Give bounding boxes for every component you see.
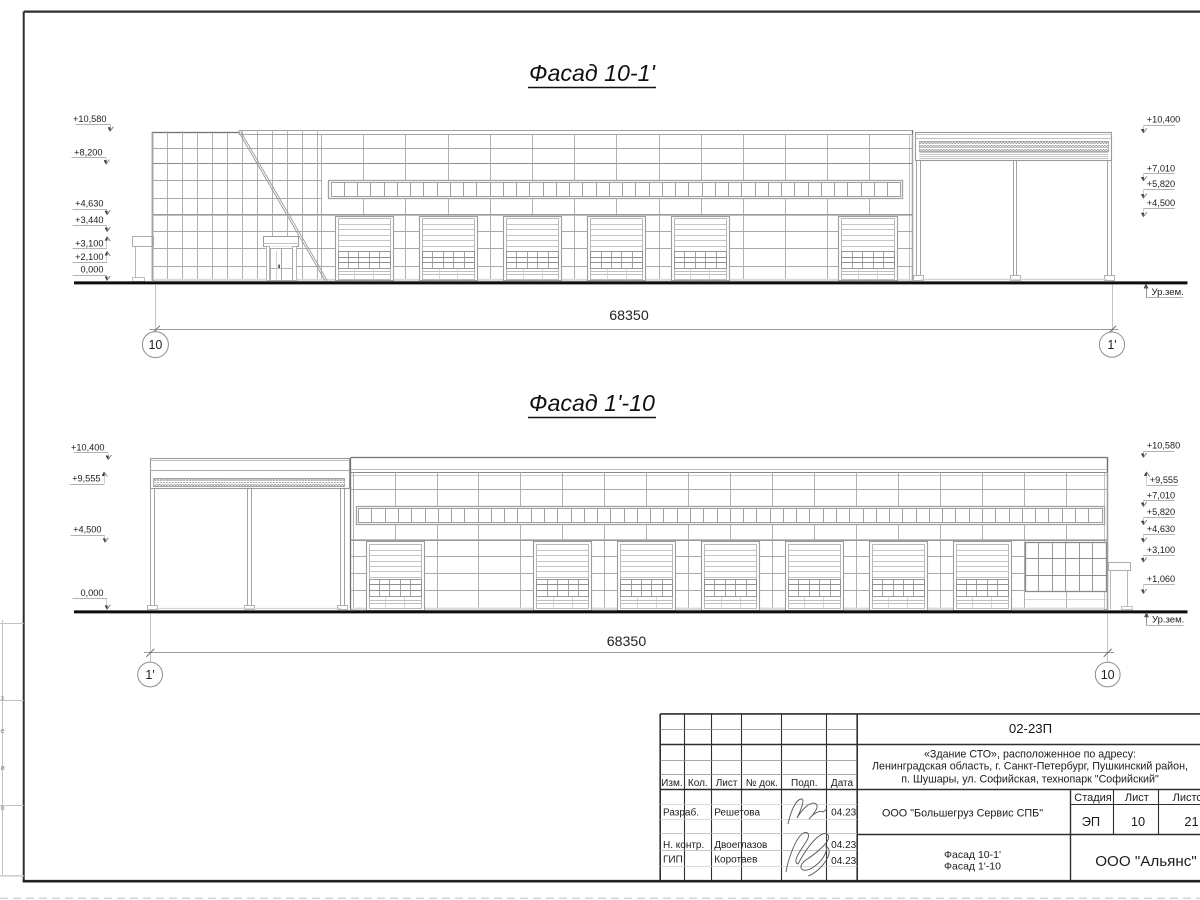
svg-text:0,000: 0,000	[81, 265, 104, 275]
svg-text:«Здание СТО», расположенное по: «Здание СТО», расположенное по адресу:	[924, 749, 1136, 761]
svg-text:Разраб.: Разраб.	[663, 806, 699, 818]
svg-text:+10,400: +10,400	[71, 442, 104, 452]
svg-text:Подп.: Подп.	[791, 778, 818, 789]
svg-text:+10,580: +10,580	[73, 114, 106, 124]
svg-text:Двоеглазов: Двоеглазов	[714, 840, 767, 851]
svg-text:Коротаев: Коротаев	[714, 854, 757, 865]
svg-text:Решетова: Решетова	[714, 807, 760, 818]
svg-text:Фасад 10-1': Фасад 10-1'	[529, 60, 656, 86]
svg-text:Ур.зем.: Ур.зем.	[1152, 287, 1184, 298]
svg-text:04.23: 04.23	[831, 856, 856, 867]
svg-text:+9,555: +9,555	[72, 474, 100, 484]
svg-text:10: 10	[1101, 668, 1115, 682]
svg-text:­з: ­з	[1, 693, 5, 702]
svg-text:п. Шушары, ул. Софийская, техн: п. Шушары, ул. Софийская, технопарк "Соф…	[901, 774, 1159, 786]
svg-text:68350: 68350	[609, 308, 649, 324]
svg-text:Фасад 1'-10: Фасад 1'-10	[944, 861, 1001, 873]
svg-text:10: 10	[1131, 814, 1145, 829]
svg-text:+8,200: +8,200	[74, 147, 102, 157]
svg-text:+7,010: +7,010	[1147, 490, 1175, 500]
svg-text:+10,400: +10,400	[1147, 115, 1180, 125]
svg-text:+3,100: +3,100	[75, 238, 103, 248]
svg-text:68350: 68350	[607, 634, 647, 650]
svg-text:ЭП: ЭП	[1082, 814, 1100, 829]
svg-text:Лист: Лист	[1125, 792, 1149, 804]
svg-text:Стадия: Стадия	[1074, 792, 1112, 804]
svg-text:04.23: 04.23	[831, 807, 856, 818]
svg-text:Лист: Лист	[716, 778, 738, 789]
svg-text:+10,580: +10,580	[1147, 441, 1180, 451]
svg-text:04.23: 04.23	[831, 840, 856, 851]
svg-text:+5,820: +5,820	[1147, 507, 1175, 517]
svg-text:+3,100: +3,100	[1147, 545, 1175, 555]
svg-text:+4,500: +4,500	[73, 525, 101, 535]
svg-text:№ док.: № док.	[746, 778, 778, 789]
svg-text:Дата: Дата	[831, 778, 854, 789]
svg-text:+4,500: +4,500	[1147, 198, 1175, 208]
svg-text:Фасад 10-1': Фасад 10-1'	[944, 849, 1001, 861]
svg-text:и: и	[1, 763, 5, 772]
svg-text:Листов: Листов	[1173, 792, 1200, 804]
svg-text:Фасад 1'-10: Фасад 1'-10	[529, 390, 655, 416]
svg-text:+4,630: +4,630	[1147, 524, 1175, 534]
svg-text:Кол.: Кол.	[688, 778, 708, 789]
svg-text:ГИП: ГИП	[663, 854, 683, 865]
svg-text:+2,100: +2,100	[75, 252, 103, 262]
svg-text:Изм.: Изм.	[661, 778, 682, 789]
svg-text:0,000: 0,000	[81, 588, 104, 598]
svg-text:Ур.зем.: Ур.зем.	[1152, 614, 1184, 625]
svg-text:ООО "Большегруз Сервис СПБ": ООО "Большегруз Сервис СПБ"	[882, 808, 1043, 820]
svg-text:+1,060: +1,060	[1147, 574, 1175, 584]
svg-text:Н. контр.: Н. контр.	[663, 840, 704, 851]
svg-text:о: о	[1, 803, 5, 812]
svg-text:ООО "Альянс": ООО "Альянс"	[1095, 853, 1197, 870]
svg-text:Ленинградская область, г. Санк: Ленинградская область, г. Санкт-Петербур…	[872, 760, 1188, 772]
svg-text:21: 21	[1184, 814, 1198, 829]
svg-text:1': 1'	[1107, 338, 1116, 352]
svg-text:+9,555: +9,555	[1150, 475, 1178, 485]
svg-text:+5,820: +5,820	[1147, 179, 1175, 189]
svg-text:02-23П: 02-23П	[1009, 721, 1052, 736]
svg-text:1': 1'	[145, 668, 154, 682]
svg-text:+4,630: +4,630	[75, 199, 103, 209]
svg-text:е: е	[1, 726, 5, 735]
svg-text:+3,440: +3,440	[75, 215, 103, 225]
svg-text:10: 10	[148, 338, 162, 352]
svg-text:+7,010: +7,010	[1147, 163, 1175, 173]
